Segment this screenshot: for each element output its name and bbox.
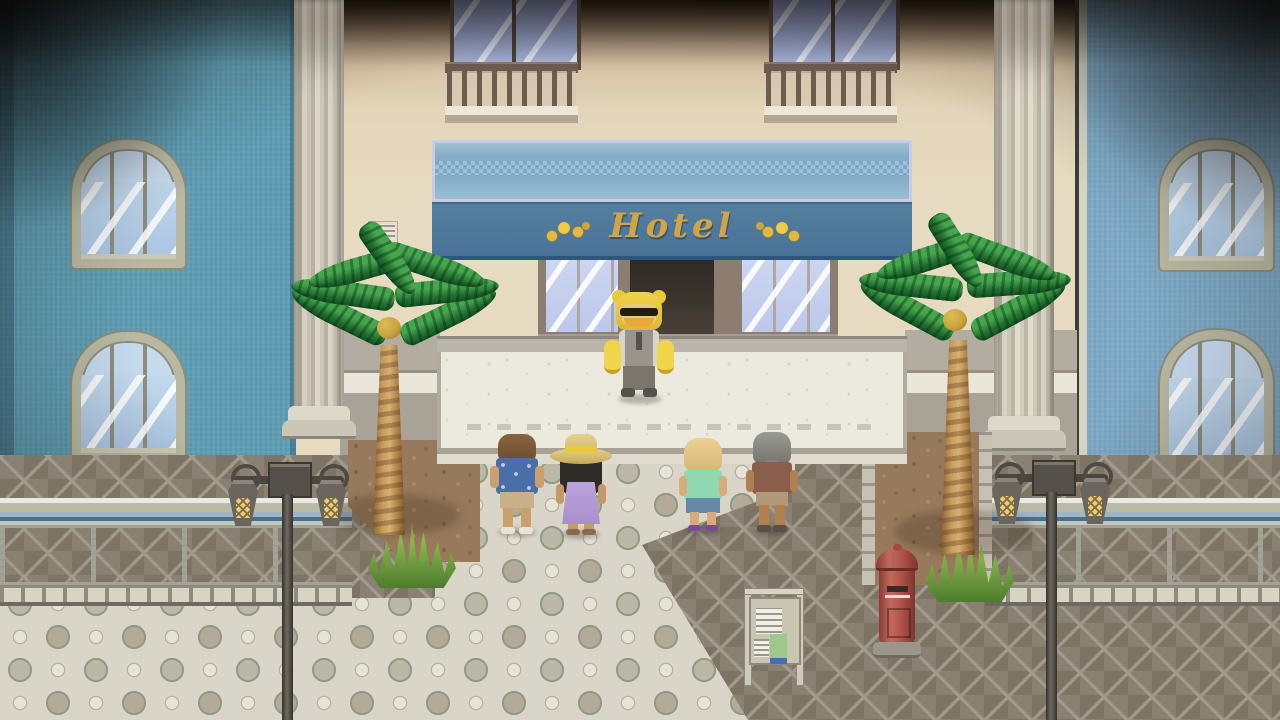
flip-flop [705,525,718,531]
arm [679,476,687,496]
balcony-foot [445,115,578,123]
lamp-pole [1046,492,1057,720]
sunglasses [620,308,658,316]
tourist-grey-hair[interactable] [746,432,798,534]
window-panes [81,375,176,453]
arm [535,466,544,488]
patterned-shirt [496,458,538,494]
arched-window [72,140,185,268]
dress [562,482,600,524]
window-sill [72,254,185,268]
balcony-balusters [447,71,576,106]
laurel-ornament-icon [754,218,806,246]
leg [503,508,513,528]
game-viewport: Hotel [0,0,1280,720]
arched-window [1160,140,1273,270]
tie [636,332,642,350]
noticeboard[interactable] [744,588,802,686]
shoe [621,388,635,397]
sandal [757,525,771,532]
postbox-panel [887,608,911,638]
hotel-sign: Hotel [432,202,912,260]
sandal [519,527,533,534]
lantern-glow [1000,496,1014,516]
balcony-base [764,106,897,115]
balcony-window [764,0,897,123]
arm [598,484,606,504]
postbox-knob [893,544,902,551]
arm [490,466,499,488]
bear-paw [657,340,674,374]
window-transom [1169,339,1264,382]
leg [690,512,699,526]
hotel-storefront [538,256,838,338]
window-transom [81,149,176,186]
trousers [623,366,655,390]
bear-mascot-doorman[interactable] [606,288,672,404]
shorts [756,492,788,506]
arm [746,470,754,492]
coconut [943,309,967,331]
postbox-slot-line [885,595,910,598]
street-lamp-right [992,438,1112,720]
postbox-slot [887,586,908,592]
hair [684,438,722,472]
postbox-cap [876,548,918,571]
arm [556,484,564,504]
shoe [643,388,657,397]
pinned-paper [770,634,787,664]
lamp-pole [282,494,293,720]
tourist-teal-shirt[interactable] [678,438,728,534]
sandal [566,529,580,535]
street-lamp-left [228,440,348,720]
sandal [501,527,515,534]
arched-window [72,332,185,462]
window-sill [1160,256,1273,270]
awning-checker-band [435,161,909,175]
window-panes [1169,183,1264,261]
balcony-mullion [831,0,835,70]
leg [521,508,531,528]
palm-trunk [941,340,975,555]
arm [790,470,798,492]
board-top-bar [744,588,804,595]
tourist-blue-shirt[interactable] [490,434,544,536]
balcony-window [445,0,578,123]
lantern-glow [324,498,338,518]
shirt [752,462,792,494]
sandal [582,529,596,535]
palm-trunk [373,345,405,535]
red-postbox[interactable] [876,548,920,658]
storefront-window-right [742,260,830,332]
pinned-paper [753,605,785,637]
leg [707,512,716,526]
flip-flop [688,525,701,531]
window-transom [81,341,176,379]
window-transom [1169,149,1264,187]
lantern-glow [1088,496,1102,516]
balcony-glass [450,0,581,70]
tourist-sun-hat[interactable] [550,432,612,538]
leg [775,505,785,525]
leg [759,505,769,525]
window-panes [81,182,176,259]
balcony-foot [764,115,897,123]
balcony-mullion [512,0,516,70]
shorts [500,492,534,508]
balcony-balusters [766,71,895,106]
pinned-paper [752,637,771,659]
coconut [377,317,401,339]
hat-ribbon [565,446,597,453]
lamp-head [268,462,312,498]
sandal [773,525,787,532]
awning-canopy [432,140,912,202]
balcony-glass [769,0,900,70]
platform-mat-dashes [467,424,877,430]
postbox-base [873,642,921,658]
bear-paw [604,340,621,374]
hotel-sign-text: Hotel [432,206,912,246]
lantern-glow [236,498,250,518]
shirt [684,470,722,500]
shorts [686,498,720,513]
arm [719,476,727,496]
lamp-head [1032,460,1076,496]
moustache [624,318,654,326]
balcony-base [445,106,578,115]
